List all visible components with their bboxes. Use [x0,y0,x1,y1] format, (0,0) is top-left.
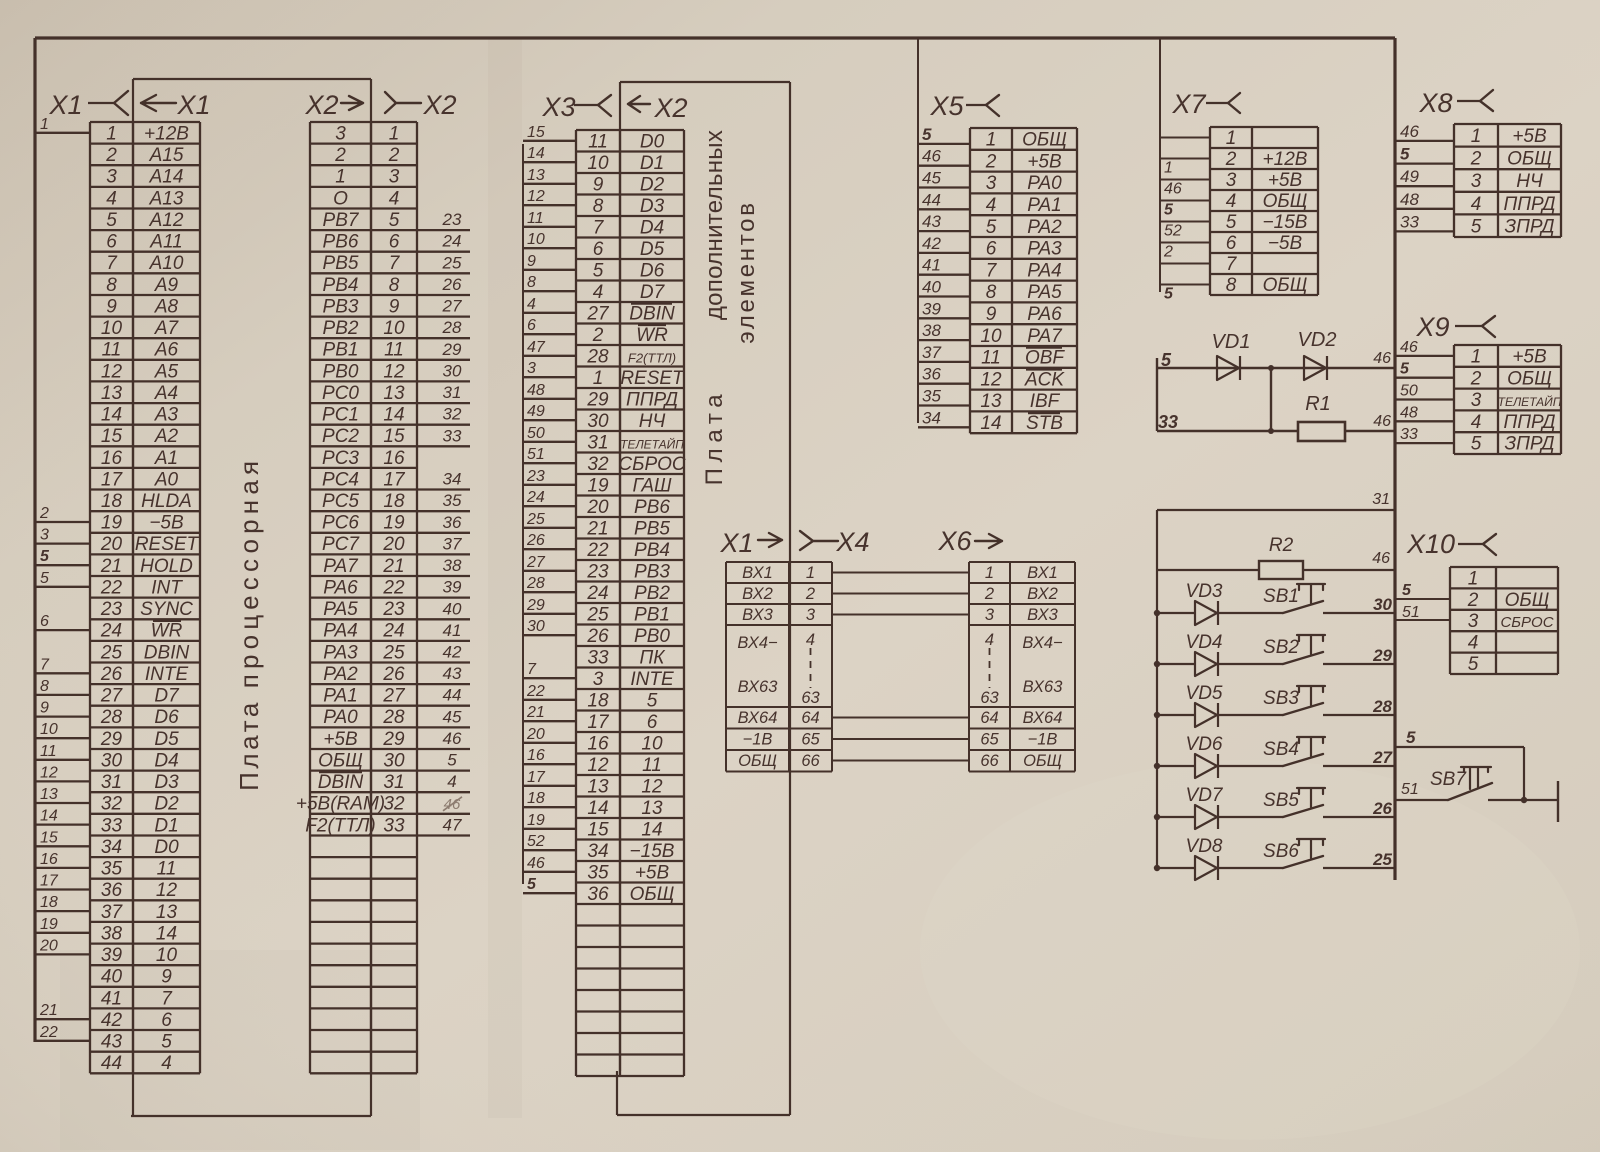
svg-text:66: 66 [801,752,820,770]
svg-text:7: 7 [986,260,998,281]
svg-text:5: 5 [922,125,932,144]
svg-text:18: 18 [40,894,58,911]
svg-text:63: 63 [980,689,999,707]
svg-text:16: 16 [527,747,545,764]
svg-text:20: 20 [39,937,58,954]
svg-text:17: 17 [527,769,546,786]
svg-text:X1: X1 [176,90,210,120]
svg-text:30: 30 [527,618,545,635]
svg-text:13: 13 [101,383,123,404]
svg-text:ВХ63: ВХ63 [738,678,779,696]
svg-text:1: 1 [1471,347,1482,368]
svg-text:39: 39 [443,578,462,597]
svg-text:13: 13 [527,167,545,184]
svg-text:ЗПРД: ЗПРД [1505,434,1555,455]
svg-text:10: 10 [101,318,123,339]
svg-text:A9: A9 [154,275,179,296]
svg-text:X10: X10 [1406,529,1455,559]
svg-text:8: 8 [1226,275,1237,296]
svg-text:27: 27 [586,303,610,324]
svg-text:ОБЩ: ОБЩ [1263,275,1308,296]
svg-text:D3: D3 [154,772,179,793]
svg-text:12: 12 [527,188,545,205]
svg-text:D5: D5 [154,729,179,750]
svg-text:X3: X3 [541,92,575,122]
svg-text:VD7: VD7 [1186,785,1224,806]
svg-text:D1: D1 [640,153,664,174]
svg-text:SB7: SB7 [1430,769,1467,790]
svg-text:3: 3 [985,606,995,624]
svg-text:DBIN: DBIN [318,772,364,793]
svg-text:20: 20 [100,534,123,555]
svg-text:36: 36 [443,513,462,532]
svg-text:A12: A12 [149,210,184,231]
svg-text:29: 29 [100,729,123,750]
svg-text:6: 6 [161,1010,172,1031]
svg-text:PC6: PC6 [322,513,359,534]
svg-text:17: 17 [587,712,610,733]
svg-text:18: 18 [383,491,405,512]
svg-text:41: 41 [101,988,122,1009]
svg-text:8: 8 [40,678,49,695]
svg-text:25: 25 [1372,850,1392,869]
svg-text:PB0: PB0 [634,626,670,647]
svg-text:D4: D4 [640,217,664,238]
svg-text:7: 7 [106,253,118,274]
svg-text:−5В: −5В [149,513,184,534]
svg-text:22: 22 [382,578,405,599]
svg-text:1: 1 [1226,128,1237,149]
svg-text:5: 5 [647,690,658,711]
svg-text:4: 4 [593,282,604,303]
svg-text:16: 16 [101,448,123,469]
svg-text:A3: A3 [154,405,179,426]
svg-text:5: 5 [1226,212,1237,233]
svg-text:RESET: RESET [620,368,685,389]
svg-text:A15: A15 [149,145,184,166]
svg-text:14: 14 [980,413,1001,434]
svg-text:F2(ТТЛ): F2(ТТЛ) [628,350,676,365]
svg-text:Плата: Плата [701,389,728,486]
svg-text:3: 3 [806,606,816,624]
svg-text:HOLD: HOLD [140,556,193,577]
svg-text:28: 28 [100,707,123,728]
svg-text:19: 19 [101,513,123,534]
svg-text:4: 4 [106,188,117,209]
svg-text:17: 17 [101,469,124,490]
svg-text:PA7: PA7 [323,556,359,577]
svg-text:VD6: VD6 [1186,734,1223,755]
svg-text:ОБЩ: ОБЩ [1505,590,1550,611]
svg-text:30: 30 [383,750,405,771]
svg-text:A10: A10 [149,253,184,274]
svg-text:14: 14 [40,808,58,825]
svg-text:WR: WR [151,621,183,642]
svg-text:ППРД: ППРД [1503,412,1555,433]
svg-text:10: 10 [383,318,405,339]
svg-text:51: 51 [1401,781,1419,798]
svg-text:ВХ2: ВХ2 [1027,585,1058,603]
svg-text:46: 46 [1400,339,1418,356]
svg-text:25: 25 [382,642,405,663]
svg-text:14: 14 [641,819,662,840]
svg-text:D1: D1 [154,815,178,836]
svg-text:D4: D4 [154,750,178,771]
svg-text:ЗПРД: ЗПРД [1505,216,1555,237]
svg-text:20: 20 [526,726,545,743]
svg-text:ОБЩ: ОБЩ [1023,752,1062,770]
svg-text:1: 1 [593,368,604,389]
svg-text:D0: D0 [640,131,665,152]
svg-text:29: 29 [1372,646,1392,665]
svg-text:PB7: PB7 [323,210,360,231]
svg-text:SB4: SB4 [1263,739,1299,760]
svg-text:48: 48 [1400,190,1419,209]
svg-text:2: 2 [105,145,117,166]
svg-text:2: 2 [592,325,604,346]
svg-text:33: 33 [1400,212,1419,231]
svg-text:ППРД: ППРД [1503,194,1555,215]
svg-text:5: 5 [447,751,457,770]
svg-text:50: 50 [1400,383,1418,400]
svg-text:элементов: элементов [733,200,760,343]
svg-text:D5: D5 [640,239,665,260]
svg-text:46: 46 [1373,350,1391,367]
svg-text:3: 3 [335,124,346,145]
svg-text:22: 22 [586,540,609,561]
svg-text:8: 8 [593,196,604,217]
svg-text:5: 5 [593,260,604,281]
svg-text:13: 13 [156,902,178,923]
svg-text:21: 21 [100,556,122,577]
svg-text:6: 6 [527,317,536,334]
svg-text:32: 32 [101,794,123,815]
svg-text:ОБЩ: ОБЩ [738,752,777,770]
svg-text:6: 6 [986,239,997,260]
svg-text:A14: A14 [149,167,184,188]
svg-text:D6: D6 [640,260,665,281]
svg-text:37: 37 [101,902,124,923]
svg-text:SYNC: SYNC [140,599,193,620]
svg-text:32: 32 [383,794,405,815]
svg-text:18: 18 [101,491,123,512]
svg-text:НЧ: НЧ [639,411,666,432]
svg-text:A0: A0 [154,469,179,490]
svg-text:PC0: PC0 [322,383,359,404]
svg-text:процессорная: процессорная [234,456,264,689]
svg-text:31: 31 [383,772,404,793]
svg-text:9: 9 [161,967,172,988]
svg-text:27: 27 [382,686,406,707]
svg-text:52: 52 [1164,223,1182,240]
svg-text:1: 1 [1471,126,1482,147]
svg-text:2: 2 [1470,149,1482,170]
svg-text:30: 30 [1373,595,1392,614]
svg-text:11: 11 [40,743,57,760]
svg-text:X2: X2 [653,93,687,123]
svg-text:F2(ТТЛ): F2(ТТЛ) [305,815,375,836]
svg-text:−15В: −15В [1263,212,1308,233]
svg-text:21: 21 [586,518,608,539]
svg-text:25: 25 [526,511,545,528]
svg-text:OBF: OBF [1025,348,1065,369]
svg-text:2: 2 [1163,244,1173,261]
svg-text:64: 64 [980,709,998,727]
svg-text:44: 44 [443,686,462,705]
svg-text:25: 25 [586,604,609,625]
svg-text:PA4: PA4 [323,621,358,642]
svg-text:PB1: PB1 [634,604,670,625]
svg-text:ВХ4−: ВХ4− [737,634,778,652]
svg-text:28: 28 [1372,697,1392,716]
svg-text:5: 5 [389,210,400,231]
svg-text:14: 14 [156,923,177,944]
svg-text:13: 13 [641,798,663,819]
svg-text:1: 1 [335,167,346,188]
svg-text:PA4: PA4 [1027,260,1062,281]
svg-text:+12В: +12В [1263,149,1308,170]
svg-text:3: 3 [40,527,49,544]
svg-text:33: 33 [587,647,609,668]
svg-text:PA3: PA3 [1027,239,1062,260]
svg-text:45: 45 [922,169,941,188]
svg-text:26: 26 [586,626,609,647]
svg-text:66: 66 [980,752,999,770]
svg-text:46: 46 [1400,122,1419,141]
svg-text:63: 63 [801,689,820,707]
svg-text:4: 4 [1471,412,1482,433]
svg-text:PA1: PA1 [323,686,358,707]
svg-text:23: 23 [526,468,545,485]
svg-text:15: 15 [587,819,609,840]
svg-text:X2: X2 [304,90,338,120]
svg-text:64: 64 [801,709,819,727]
svg-text:12: 12 [383,361,405,382]
svg-text:−15В: −15В [630,841,675,862]
svg-text:34: 34 [101,837,122,858]
svg-text:ВХ64: ВХ64 [738,709,778,727]
svg-text:DBIN: DBIN [144,642,190,663]
svg-text:28: 28 [442,318,462,337]
svg-text:D2: D2 [640,174,665,195]
svg-text:4: 4 [986,195,997,216]
svg-text:HLDA: HLDA [141,491,192,512]
svg-text:17: 17 [383,469,406,490]
svg-text:A8: A8 [154,296,179,317]
svg-text:18: 18 [587,690,609,711]
svg-text:23: 23 [100,599,123,620]
svg-text:26: 26 [526,532,545,549]
svg-text:PC2: PC2 [322,426,359,447]
svg-text:21: 21 [39,1002,58,1019]
svg-text:33: 33 [383,815,405,836]
svg-text:ОБЩ: ОБЩ [1507,368,1552,389]
svg-text:14: 14 [527,145,545,162]
svg-text:43: 43 [922,212,941,231]
svg-text:33: 33 [1158,412,1178,432]
svg-text:ВХ3: ВХ3 [742,606,773,624]
svg-text:+5В(RAM): +5В(RAM) [296,794,385,815]
svg-text:22: 22 [526,683,545,700]
svg-text:12: 12 [40,764,58,781]
svg-text:40: 40 [922,278,941,297]
svg-text:38: 38 [443,556,462,575]
svg-text:3: 3 [593,669,604,690]
svg-text:D7: D7 [154,686,180,707]
svg-text:34: 34 [443,470,462,489]
svg-text:R1: R1 [1305,393,1331,415]
svg-text:PA0: PA0 [1027,173,1062,194]
svg-text:4: 4 [1226,191,1237,212]
svg-text:5: 5 [1471,434,1482,455]
svg-text:46: 46 [1373,413,1391,430]
svg-text:3: 3 [1471,171,1482,192]
svg-text:PB2: PB2 [634,583,670,604]
svg-text:PA2: PA2 [1027,217,1062,238]
svg-text:3: 3 [389,167,400,188]
svg-text:2: 2 [39,505,49,522]
svg-text:11: 11 [157,859,177,880]
svg-text:1: 1 [40,116,49,133]
svg-text:42: 42 [101,1010,123,1031]
svg-text:36: 36 [922,365,941,384]
svg-text:8: 8 [527,274,536,291]
svg-text:32: 32 [443,405,462,424]
svg-text:13: 13 [383,383,405,404]
svg-text:7: 7 [161,988,173,1009]
svg-text:49: 49 [1400,167,1419,186]
svg-text:13: 13 [980,391,1002,412]
svg-text:15: 15 [40,829,58,846]
svg-text:48: 48 [1400,404,1418,421]
svg-text:X1: X1 [48,90,82,120]
svg-text:65: 65 [980,731,999,749]
svg-text:7: 7 [40,656,50,673]
svg-text:1: 1 [1164,160,1173,177]
svg-text:VD4: VD4 [1186,632,1223,653]
svg-text:10: 10 [527,231,545,248]
svg-text:1: 1 [806,564,815,582]
svg-text:PC4: PC4 [322,469,359,490]
svg-text:27: 27 [442,297,462,316]
svg-text:35: 35 [101,859,123,880]
svg-text:VD5: VD5 [1186,683,1223,704]
svg-text:31: 31 [1372,491,1390,508]
svg-text:SB6: SB6 [1263,841,1299,862]
svg-text:33: 33 [443,426,462,445]
svg-text:RESET: RESET [135,534,200,555]
svg-text:34: 34 [922,408,941,427]
svg-text:D2: D2 [154,794,179,815]
svg-text:5: 5 [1402,582,1412,599]
svg-text:5: 5 [40,570,49,587]
svg-text:26: 26 [1372,799,1392,818]
svg-text:5: 5 [1164,202,1174,219]
svg-text:15: 15 [101,426,123,447]
svg-text:SB1: SB1 [1263,586,1299,607]
svg-text:PC1: PC1 [322,405,359,426]
svg-text:3: 3 [986,173,997,194]
svg-text:ППРД: ППРД [626,389,678,410]
svg-text:Плата: Плата [234,699,264,791]
svg-text:39: 39 [101,945,123,966]
svg-text:42: 42 [443,643,462,662]
svg-text:32: 32 [587,454,609,475]
svg-text:7: 7 [1226,254,1238,275]
svg-text:СБРОС: СБРОС [1500,614,1553,631]
svg-text:47: 47 [527,339,546,356]
svg-text:PB2: PB2 [323,318,359,339]
svg-text:3: 3 [527,360,536,377]
svg-text:35: 35 [922,387,941,406]
svg-text:+12В: +12В [144,124,189,145]
svg-text:22: 22 [39,1024,58,1041]
svg-text:30: 30 [587,411,609,432]
svg-text:PC5: PC5 [322,491,359,512]
svg-text:A11: A11 [149,232,182,253]
svg-text:X9: X9 [1415,312,1449,342]
svg-text:5: 5 [1164,286,1174,303]
svg-text:5: 5 [1406,728,1416,747]
svg-text:D3: D3 [640,196,665,217]
svg-text:+5В: +5В [1268,170,1303,191]
svg-text:41: 41 [443,621,462,640]
svg-text:40: 40 [101,967,123,988]
svg-text:−1В: −1В [1028,731,1058,749]
svg-text:38: 38 [922,321,941,340]
svg-text:29: 29 [382,729,405,750]
svg-text:SB2: SB2 [1263,637,1299,658]
svg-text:10: 10 [40,721,58,738]
svg-text:20: 20 [382,534,405,555]
svg-text:31: 31 [587,432,608,453]
svg-text:X8: X8 [1418,88,1452,118]
svg-text:7: 7 [527,661,537,678]
svg-text:9: 9 [106,296,117,317]
svg-text:10: 10 [156,945,178,966]
svg-text:11: 11 [981,348,1001,369]
svg-text:52: 52 [527,833,545,850]
svg-text:46: 46 [1164,181,1182,198]
svg-text:9: 9 [986,304,997,325]
svg-text:12: 12 [101,361,123,382]
svg-text:IBF: IBF [1030,391,1061,412]
svg-text:PB4: PB4 [634,540,670,561]
svg-text:2: 2 [1225,149,1237,170]
svg-text:14: 14 [383,405,404,426]
svg-text:9: 9 [389,296,400,317]
svg-text:13: 13 [40,786,58,803]
svg-text:5: 5 [106,210,117,231]
svg-text:4: 4 [161,1053,172,1074]
svg-text:19: 19 [383,513,405,534]
svg-text:21: 21 [382,556,404,577]
svg-text:1: 1 [986,130,997,151]
svg-text:37: 37 [443,534,462,553]
svg-text:D6: D6 [154,707,179,728]
svg-text:11: 11 [642,755,662,776]
svg-text:39: 39 [922,299,941,318]
svg-text:2: 2 [1470,368,1482,389]
svg-text:15: 15 [527,124,545,141]
svg-text:SB5: SB5 [1263,790,1299,811]
svg-text:2: 2 [1467,590,1479,611]
svg-text:4: 4 [985,631,994,649]
svg-text:27: 27 [100,686,124,707]
svg-text:29: 29 [586,389,609,410]
svg-text:ACK: ACK [1024,369,1065,390]
svg-text:65: 65 [801,731,820,749]
